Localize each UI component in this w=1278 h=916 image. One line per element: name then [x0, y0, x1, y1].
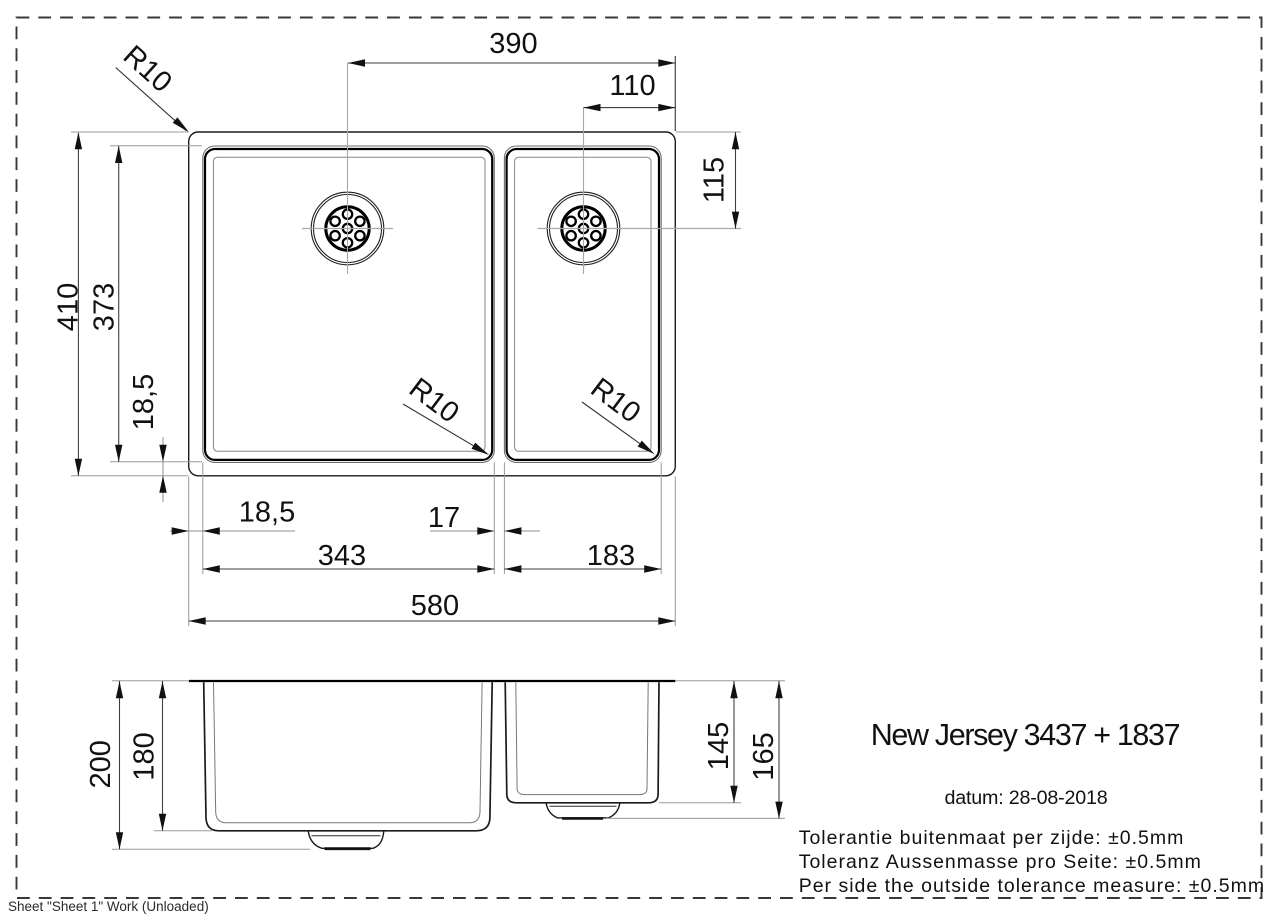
svg-text:18,5: 18,5	[239, 497, 295, 529]
svg-text:18,5: 18,5	[128, 374, 160, 430]
svg-text:115: 115	[699, 157, 731, 203]
svg-text:Tolerantie buitenmaat per zijd: Tolerantie buitenmaat per zijde: ±0.5mm	[799, 827, 1185, 849]
svg-text:145: 145	[703, 722, 735, 770]
svg-text:Per side the outside tolerance: Per side the outside tolerance measure: …	[799, 875, 1265, 897]
svg-text:200: 200	[85, 740, 117, 788]
svg-text:17: 17	[428, 502, 460, 534]
svg-text:410: 410	[53, 283, 85, 331]
svg-text:183: 183	[587, 540, 635, 572]
svg-text:datum: 28-08-2018: datum: 28-08-2018	[945, 787, 1108, 809]
svg-text:Toleranz Aussenmasse pro Seite: Toleranz Aussenmasse pro Seite: ±0.5mm	[799, 851, 1202, 873]
svg-text:373: 373	[89, 283, 121, 331]
svg-text:110: 110	[609, 70, 655, 102]
svg-text:180: 180	[129, 732, 161, 780]
svg-text:Sheet "Sheet 1" Work (Unloaded: Sheet "Sheet 1" Work (Unloaded)	[8, 899, 209, 914]
svg-text:165: 165	[748, 732, 780, 780]
svg-text:New Jersey 3437 + 1837: New Jersey 3437 + 1837	[871, 718, 1180, 752]
svg-text:390: 390	[489, 28, 537, 60]
svg-text:580: 580	[411, 590, 459, 622]
svg-text:343: 343	[318, 540, 366, 572]
